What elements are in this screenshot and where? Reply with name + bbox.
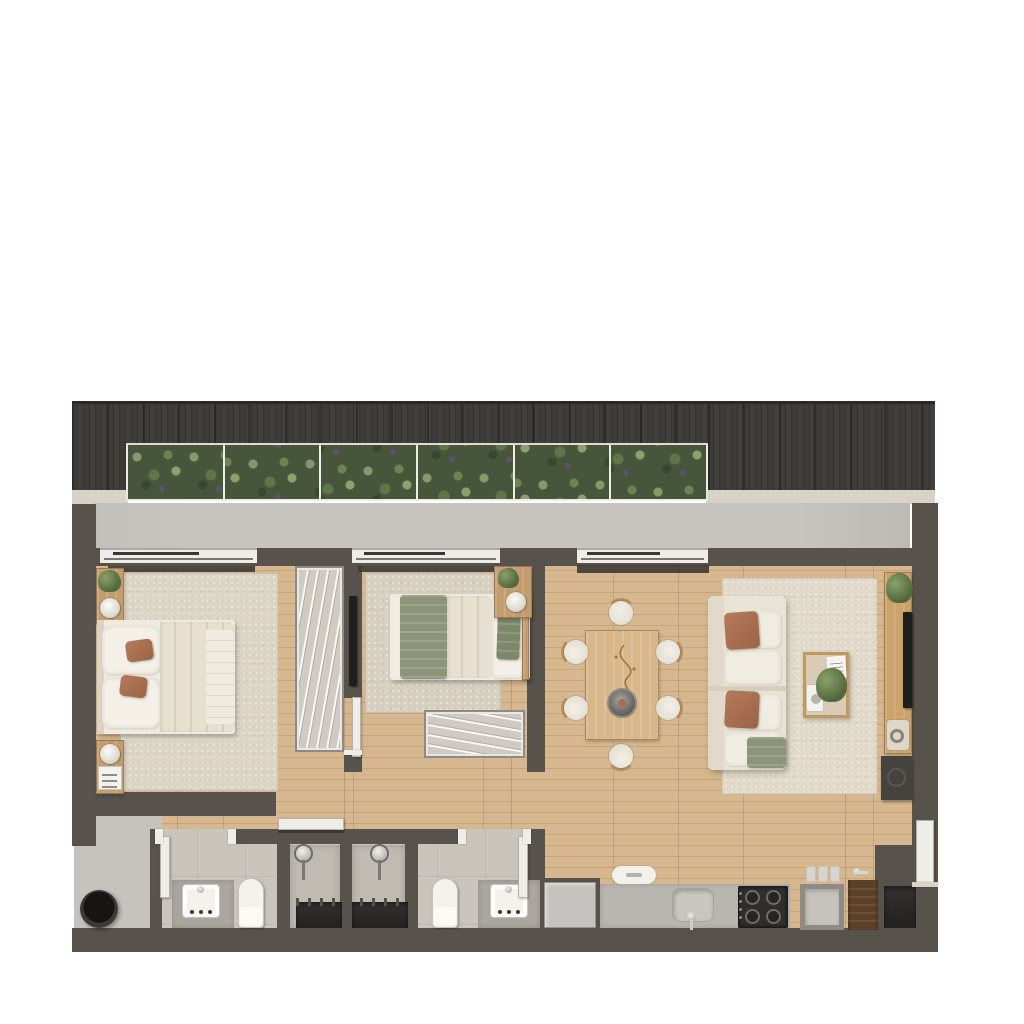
planter-segment [515,445,610,499]
wall-bath-top [234,829,462,844]
sliding-door-leaf [587,552,659,555]
media-cabinet [881,756,912,800]
balcony-ledge-left [72,490,128,504]
bathroom1-door-leaf [160,836,170,898]
bathroom2-door-leaf [518,836,528,898]
shower-stem-1 [302,860,305,880]
tray-ring-icon [890,729,904,743]
shower-drain-tick [332,898,335,906]
dining-chair [562,638,590,666]
glass-jar [830,866,840,882]
planter-segment [611,445,706,499]
bed-duvet [447,596,492,678]
book-icon [98,766,122,790]
terracotta-accent-pillow [119,674,148,698]
glass-jar [818,866,828,882]
chair-seat [564,640,588,664]
wall-shower-partition-1 [277,843,290,928]
door-frame-cap [155,829,163,844]
nightstand-plant-icon [498,568,518,588]
pergola-right-section [708,404,935,492]
stove-knob [739,908,742,911]
kitchen-stool [612,866,656,884]
glass-jar [806,866,816,882]
chair-seat [656,640,680,664]
vanity-knob [208,910,212,914]
bowl-fruit-dot [618,699,626,707]
balcony-window-1 [100,550,257,563]
door-frame-cap [458,829,466,844]
bedroom2-curtain-box [358,566,498,572]
cabinet-ring-icon [887,768,906,787]
burner-icon [745,890,760,905]
wardrobe-bedroom2 [424,710,525,758]
bedroom2-wall-tv [349,596,357,686]
terracotta-accent-pillow [125,638,155,663]
stool-slot [626,873,642,877]
living-curtain-box [577,565,709,573]
terrace-floor [94,503,910,549]
shower-niche-1 [296,902,342,928]
dining-chair [607,599,635,627]
nightstand-plant-icon [98,570,120,592]
laundry-tub [800,884,844,930]
coffee-table-plant-icon [816,668,846,702]
vanity-knob [199,910,203,914]
centerpiece-bowl-icon [609,690,635,716]
balcony-window-3 [577,550,708,563]
toilet-tank [434,907,456,925]
terracotta-sofa-pillow [724,611,760,650]
sage-pillow [496,614,521,661]
stove-knob [739,892,742,895]
table-lamp-icon [100,598,120,618]
shower-drain-tick [296,898,299,906]
sliding-door-track [278,830,344,833]
chair-seat [609,601,633,625]
dining-chair [562,694,590,722]
toilet-tank [240,907,262,925]
hallway-sliding-door [278,818,344,830]
chair-seat [656,696,680,720]
shower-drain-tick [360,898,363,906]
console-plant-icon [886,573,912,603]
sliding-door-leaf [364,552,445,555]
window-rail-icon [356,558,496,560]
service-door-right [916,820,934,884]
planter-segment [418,445,513,499]
burner-icon [766,909,781,924]
sliding-door-leaf [113,552,199,555]
window-rail-icon [104,558,253,560]
shower-stem-2 [378,860,381,880]
cooktop [738,886,788,928]
refrigerator [544,882,596,928]
chair-seat [564,696,588,720]
burner-icon [766,890,781,905]
shower-head-2 [372,846,387,861]
entry-floor-pot [80,890,118,928]
table-lamp-icon [100,744,120,764]
faucet-icon [505,886,512,893]
planter-box [126,443,708,501]
shower-drain-tick [372,898,375,906]
dining-table [585,630,659,740]
sage-sofa-throw [747,737,786,768]
planter-segment [128,445,223,499]
living-wall-tv [903,612,912,708]
dining-chair [654,694,682,722]
vanity-knob [507,910,511,914]
door-frame-cap [228,829,236,844]
kitchen-faucet-stem [690,920,693,930]
shower-drain-tick [396,898,399,906]
shower-drain-tick [320,898,323,906]
shower-drain-tick [384,898,387,906]
console-tray [887,720,909,750]
wall-bedroom1-bottom [72,792,276,816]
wall-bottom [72,928,938,952]
toilet-1 [238,878,264,928]
door-threshold [344,750,362,755]
door-frame-cap [523,829,531,844]
shower-drain-tick [308,898,311,906]
toilet-2 [432,878,458,928]
vanity-knob [190,910,194,914]
floor-plan-canvas [0,0,1024,1024]
wood-cabinet [848,880,878,930]
service-door-threshold [912,882,938,887]
table-lamp-icon [506,592,526,612]
sofa-backrest [708,596,724,770]
balcony-ledge-right [706,490,935,504]
wardrobe-bedroom1 [295,566,344,752]
balcony-window-2 [352,550,500,563]
window-rail-icon [581,558,704,560]
vanity-knob [498,910,502,914]
pergola-left-cap [72,404,126,492]
planter-segment [225,445,320,499]
faucet-icon [197,886,204,893]
bedroom1-curtain-box [108,566,255,572]
bed-quilted-edge [206,630,235,724]
chair-seat [609,744,633,768]
terracotta-sofa-pillow [724,690,760,729]
shower-head-1 [296,846,311,861]
dining-chair [607,742,635,770]
cabinet-faucet-bar [856,871,868,874]
dining-chair [654,638,682,666]
burner-icon [745,909,760,924]
stove-knob [739,916,742,919]
bedroom2-door-leaf [352,697,361,757]
sofa-cushion [724,650,781,684]
sage-throw-blanket [400,595,447,679]
vanity-knob [516,910,520,914]
stove-knob [739,900,742,903]
planter-segment [321,445,416,499]
kitchen-wall-niche [884,886,916,928]
